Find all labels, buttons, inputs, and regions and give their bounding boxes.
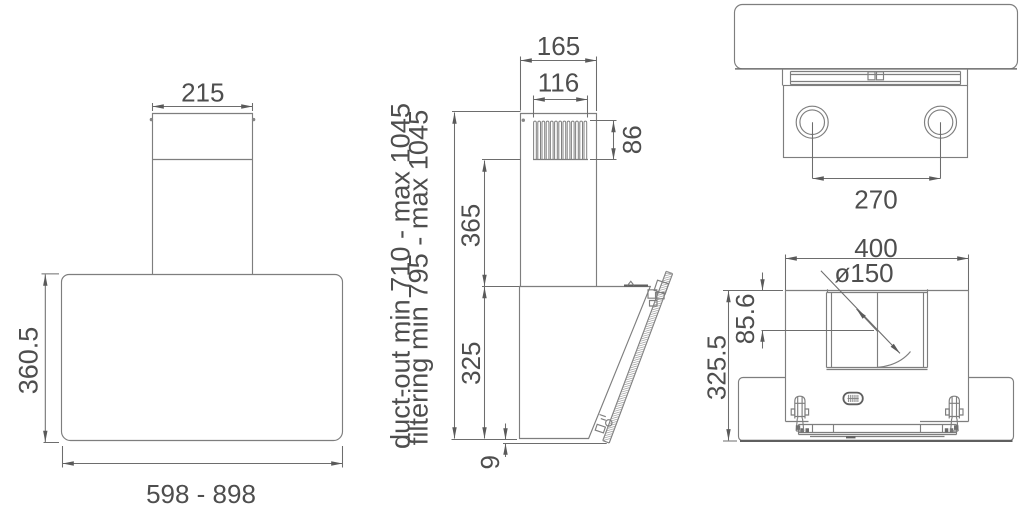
svg-text:9: 9: [475, 455, 505, 469]
svg-text:85.6: 85.6: [730, 294, 760, 345]
svg-text:270: 270: [854, 185, 897, 215]
svg-text:598 - 898: 598 - 898: [146, 479, 256, 509]
svg-text:86: 86: [617, 125, 647, 154]
svg-text:ø150: ø150: [834, 258, 893, 288]
svg-text:116: 116: [538, 68, 579, 98]
svg-text:325: 325: [456, 342, 486, 385]
svg-text:165: 165: [537, 31, 580, 61]
svg-text:215: 215: [181, 77, 224, 107]
svg-text:360.5: 360.5: [14, 327, 44, 395]
svg-text:325.5: 325.5: [701, 335, 731, 400]
svg-text:365: 365: [456, 204, 486, 247]
svg-text:filtering min 795 - max 1045: filtering min 795 - max 1045: [403, 110, 434, 445]
